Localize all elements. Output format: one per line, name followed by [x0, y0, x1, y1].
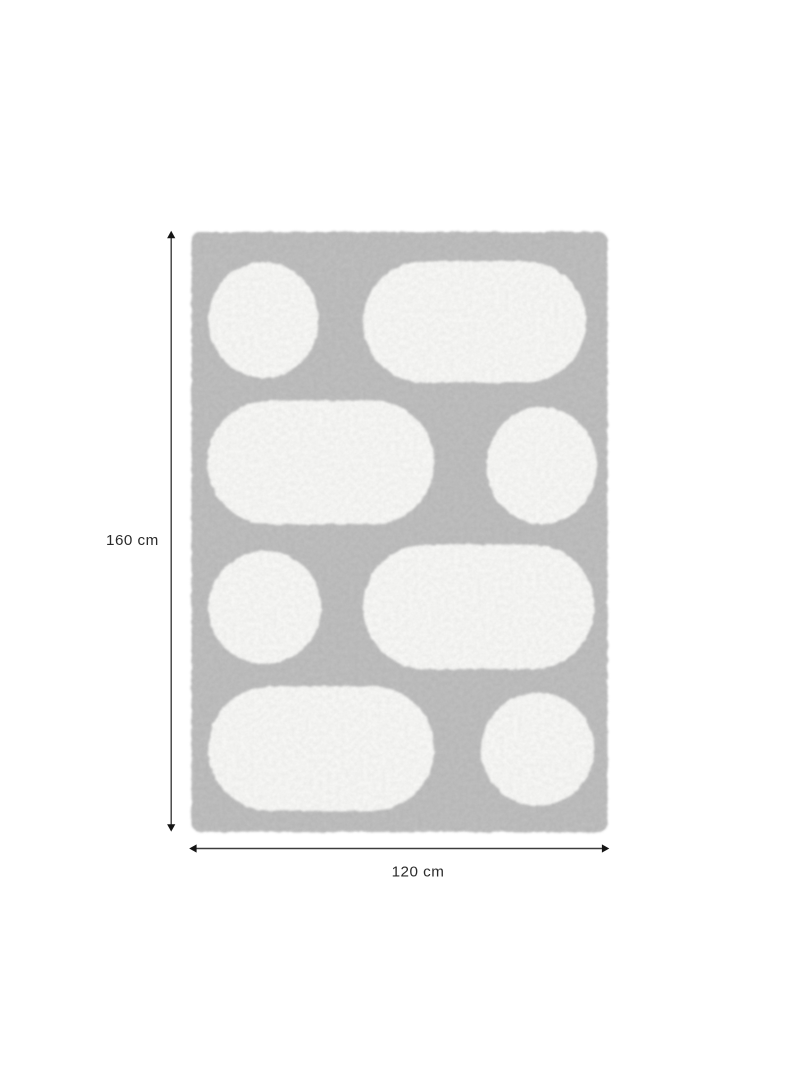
svg-text:160 cm: 160 cm	[106, 532, 159, 549]
svg-text:120 cm: 120 cm	[392, 863, 445, 880]
